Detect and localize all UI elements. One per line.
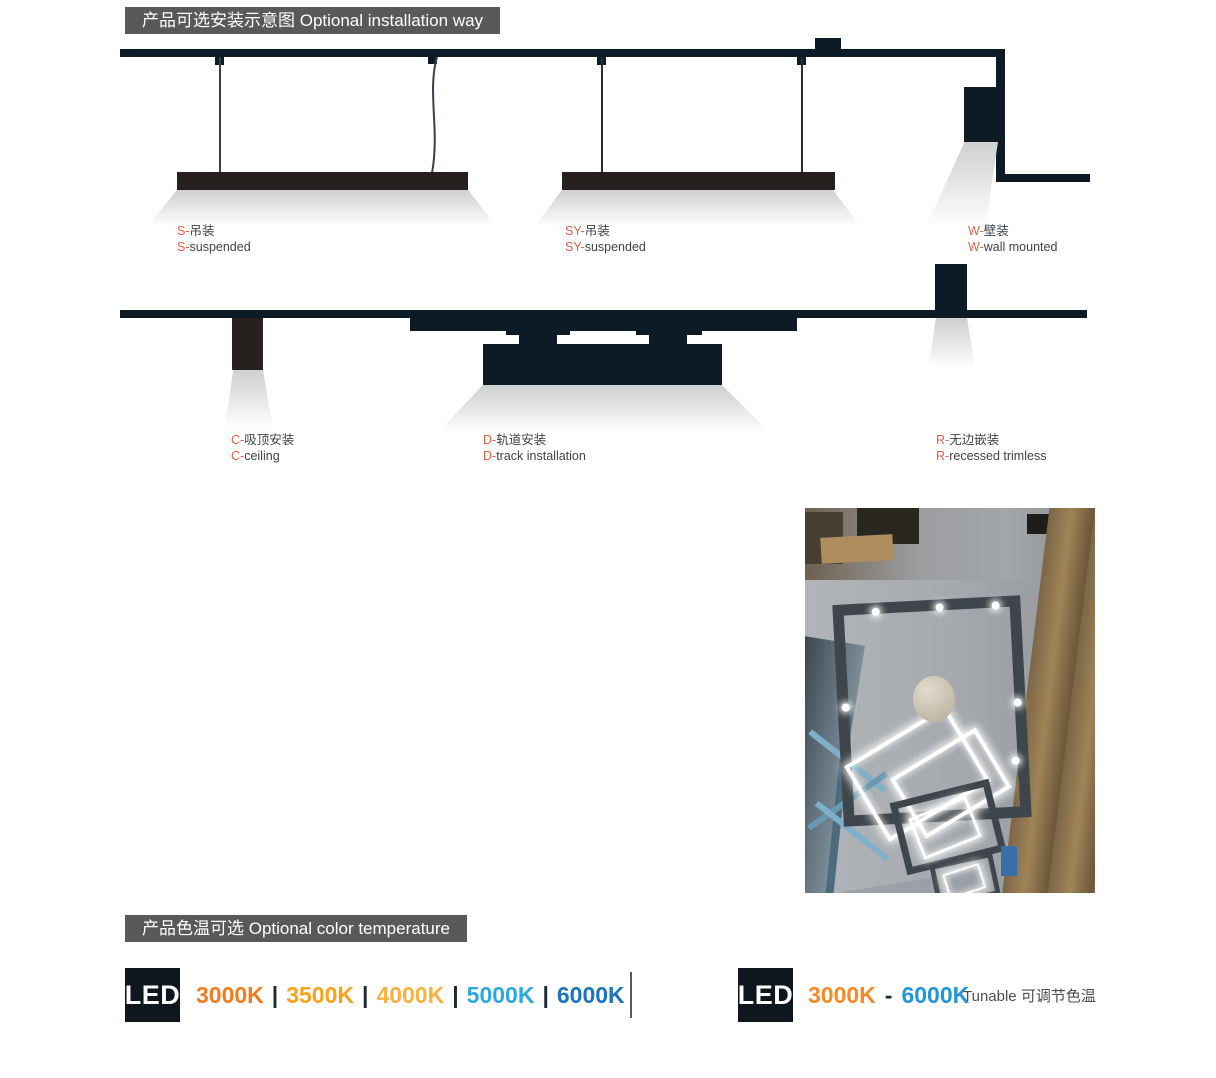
catalog-page: 产品可选安装示意图 Optional installation way S-吊装… (0, 0, 1216, 1078)
sy-suspended-fixture (562, 172, 835, 190)
installation-photo (805, 508, 1095, 893)
tunable-note: Tunable 可调节色温 (963, 968, 1096, 1022)
temp-range-to: 6000K (901, 982, 969, 1009)
temp-range-from: 3000K (808, 982, 876, 1009)
suspension-wire (219, 57, 221, 172)
led-badge: LED (125, 968, 180, 1022)
temp-range-dash: - (885, 982, 893, 1009)
photo-scissor-lift (1001, 846, 1017, 876)
section-divider (630, 972, 632, 1018)
tunable-temperature-range: 3000K - 6000K (808, 968, 969, 1022)
track-adapter-stem (519, 335, 557, 344)
track-adapter (636, 320, 702, 335)
power-cord (423, 57, 443, 173)
photo-downlight (872, 608, 880, 616)
track-fixture (483, 344, 722, 385)
label-sy-suspended: SY-吊装 SY-suspended (565, 224, 646, 255)
installation-section-header: 产品可选安装示意图 Optional installation way (125, 7, 500, 34)
wall-mounted-fixture (964, 87, 998, 142)
s-suspended-fixture (177, 172, 468, 190)
wall-light-beam (922, 142, 998, 228)
temp-4000k: 4000K (376, 982, 444, 1009)
temp-5000k: 5000K (467, 982, 535, 1009)
recessed-light-beam (928, 318, 975, 368)
ceiling-line-top (120, 49, 1004, 57)
fixed-temperature-list: 3000K | 3500K | 4000K | 5000K | 6000K (196, 968, 625, 1022)
track-adapter (506, 320, 570, 335)
photo-glow-rectangle (908, 796, 982, 860)
photo-downlight (841, 703, 849, 711)
label-r-recessed: R-无边嵌装 R-recessed trimless (936, 433, 1046, 464)
temp-6000k: 6000K (557, 982, 625, 1009)
recessed-fixture (935, 264, 967, 315)
label-c-ceiling: C-吸顶安装 C-ceiling (231, 433, 294, 464)
s-light-beam (148, 190, 496, 226)
suspension-rod (801, 57, 803, 172)
ledge-line (996, 174, 1090, 182)
sy-light-beam (535, 190, 860, 226)
track-rail (410, 318, 797, 331)
photo-downlight (1012, 756, 1020, 764)
temp-separator: | (452, 982, 458, 1009)
label-d-track: D-轨道安装 D-track installation (483, 433, 586, 464)
temp-3000k: 3000K (196, 982, 264, 1009)
junction-box (815, 38, 841, 49)
color-temperature-section-header: 产品色温可选 Optional color temperature (125, 915, 467, 942)
photo-downlight (935, 603, 943, 611)
label-s-suspended: S-吊装 S-suspended (177, 224, 251, 255)
track-adapter-stem (649, 335, 687, 344)
label-w-wall-mounted: W-壁装 W-wall mounted (968, 224, 1057, 255)
ceiling-mounted-fixture (232, 318, 263, 370)
temp-3500k: 3500K (286, 982, 354, 1009)
temp-separator: | (542, 982, 548, 1009)
temp-separator: | (272, 982, 278, 1009)
photo-wrapped-pendant (913, 676, 955, 722)
suspension-rod (601, 57, 603, 172)
photo-cardboard (820, 534, 893, 564)
photo-glow-rectangle (942, 863, 986, 893)
photo-downlight (991, 601, 999, 609)
ceiling-light-beam (225, 370, 273, 428)
temp-separator: | (362, 982, 368, 1009)
photo-downlight (1013, 698, 1021, 706)
led-badge: LED (738, 968, 793, 1022)
track-light-beam (437, 385, 770, 433)
